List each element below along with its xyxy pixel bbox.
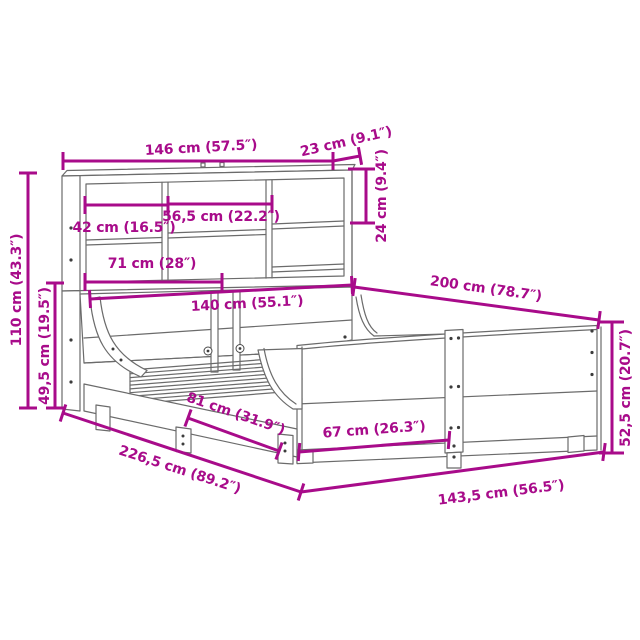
bed-dimension-diagram: 146 cm (57.5″) 23 cm (9.1″) 24 cm (9.4″)… <box>0 0 640 640</box>
footboard-center-bracket <box>445 330 463 454</box>
dim-total-width-label: 143,5 cm (56.5″) <box>437 477 565 508</box>
dim-side-rail-height-label: 52,5 cm (20.7″) <box>618 329 634 447</box>
far-side-rail <box>356 295 447 336</box>
footboard-center-leg <box>447 452 461 468</box>
rail-leg-middle <box>176 427 191 453</box>
dim-headboard-lower-height-label: 49,5 cm (19.5″) <box>37 287 53 405</box>
dim-middle-compartment-width-label: 56,5 cm (22.2″) <box>162 209 280 225</box>
dim-headboard-height-label: 110 cm (43.3″) <box>9 234 25 347</box>
dim-headboard-width-label: 146 cm (57.5″) <box>144 137 257 159</box>
footboard-right-foot <box>568 436 584 453</box>
diagram-linework: 146 cm (57.5″) 23 cm (9.1″) 24 cm (9.4″)… <box>0 0 640 640</box>
headboard-left-leg <box>62 291 80 411</box>
dim-shelf-opening-height-label: 24 cm (9.4″) <box>374 149 390 243</box>
dim-left-compartment-width-label: 42 cm (16.5″) <box>72 220 175 236</box>
dim-lower-shelf-width-label: 71 cm (28″) <box>108 256 196 272</box>
